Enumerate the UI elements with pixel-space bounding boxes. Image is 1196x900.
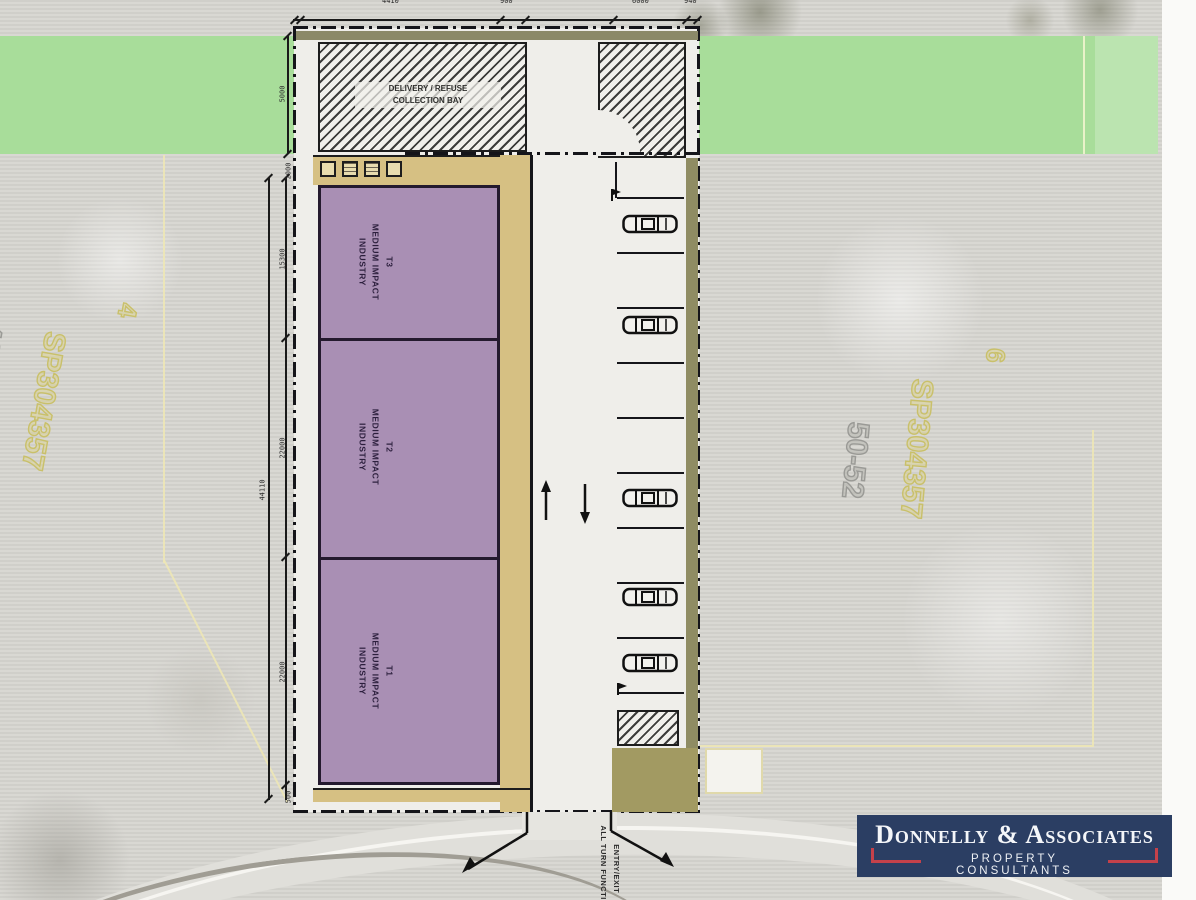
company-logo: Donnelly & Associates PROPERTY CONSULTAN… bbox=[857, 815, 1172, 877]
parking-bay-line bbox=[617, 197, 684, 199]
car-icon bbox=[622, 315, 678, 335]
car-icon bbox=[622, 587, 678, 607]
logo-bracket-left bbox=[871, 848, 921, 863]
tenancy-divider bbox=[321, 338, 497, 341]
meter-box-icon bbox=[386, 161, 402, 177]
awning-bottom-band bbox=[313, 788, 530, 802]
site-plan-page: 4 SP304357 42-44 6 SP304357 50-52 DELIVE… bbox=[0, 0, 1196, 900]
tenancy-label-t1: T1 MEDIUM IMPACT INDUSTRY bbox=[355, 633, 396, 710]
dim-label-top: 900 bbox=[500, 0, 526, 8]
tenancy-label-t2: T2 MEDIUM IMPACT INDUSTRY bbox=[355, 409, 396, 486]
tenancy-id: T3 bbox=[384, 256, 394, 267]
tenancy-use-line2: INDUSTRY bbox=[357, 647, 367, 695]
tenancy-label-t3: T3 MEDIUM IMPACT INDUSTRY bbox=[355, 224, 396, 301]
parcel-right-lot-number: 6 bbox=[979, 347, 1011, 364]
tenancy-id: T2 bbox=[384, 441, 394, 452]
rear-hatched-area bbox=[617, 710, 679, 746]
green-buffer-joint-line bbox=[1083, 36, 1085, 154]
dim-label-left-top: 2000 bbox=[284, 163, 292, 180]
entry-splay-lines bbox=[440, 805, 690, 895]
parking-bay-line bbox=[617, 307, 684, 309]
meter-box-icon bbox=[342, 161, 358, 177]
tenancy-use-line1: MEDIUM IMPACT bbox=[371, 633, 381, 710]
green-buffer-light-patch bbox=[1095, 36, 1158, 154]
tenancy-building-outline bbox=[318, 185, 500, 785]
meter-box-icon bbox=[364, 161, 380, 177]
parking-bay-line bbox=[617, 582, 684, 584]
car-icon bbox=[622, 214, 678, 234]
dim-label-top: 940 bbox=[684, 0, 710, 8]
parking-bay-line bbox=[617, 417, 684, 419]
dimension-line-setback bbox=[287, 36, 289, 154]
front-strip-label-line1: DELIVERY / REFUSE bbox=[389, 84, 468, 93]
page-edge-strip bbox=[1162, 0, 1196, 900]
parking-bay-line bbox=[617, 637, 684, 639]
dim-label-left-bottom: 500 bbox=[284, 791, 292, 804]
dimension-line-left-overall bbox=[268, 178, 270, 800]
boundary-line-right-vertical bbox=[1092, 430, 1094, 747]
tenancy-use-line1: MEDIUM IMPACT bbox=[371, 224, 381, 301]
dim-label-setback: 5000 bbox=[278, 86, 286, 103]
site-boundary-top bbox=[293, 26, 700, 29]
dimension-line-left-segments bbox=[285, 178, 287, 800]
dim-label-top: 4410 bbox=[382, 0, 414, 8]
front-strip-label-line2: COLLECTION BAY bbox=[393, 96, 463, 105]
parking-bay-line bbox=[617, 472, 684, 474]
tenancy-id: T1 bbox=[384, 665, 394, 676]
site-boundary-left bbox=[293, 26, 296, 812]
awning-side-band bbox=[500, 155, 530, 812]
parking-bay-line bbox=[617, 362, 684, 364]
tenancy-use-line2: INDUSTRY bbox=[357, 238, 367, 286]
landscape-strip bbox=[686, 158, 698, 812]
logo-bracket-right bbox=[1108, 848, 1158, 863]
car-icon bbox=[622, 653, 678, 673]
front-strip-edge-band bbox=[296, 31, 698, 40]
corner-landscape-area bbox=[612, 748, 698, 812]
dim-label-left-overall: 44110 bbox=[259, 479, 267, 500]
parking-bay-line bbox=[617, 252, 684, 254]
sign-flag-icon bbox=[616, 682, 628, 696]
entry-label-line2: ALL TURN FUNCTION bbox=[599, 825, 608, 900]
driveway-direction-arrows bbox=[535, 478, 595, 526]
small-building-footprint bbox=[705, 748, 763, 794]
parcel-right-street-number: 50-52 bbox=[834, 421, 875, 500]
boundary-line-right-horizontal bbox=[700, 745, 1092, 747]
dim-label-left-segment: 15300 bbox=[279, 248, 287, 269]
dim-label-left-segment: 22000 bbox=[279, 661, 287, 682]
entry-label-line1: ENTRY/EXIT bbox=[612, 844, 621, 893]
car-icon bbox=[622, 488, 678, 508]
parking-bay-line bbox=[617, 527, 684, 529]
tenancy-use-line1: MEDIUM IMPACT bbox=[371, 409, 381, 486]
driveway-edge-line bbox=[530, 155, 533, 812]
dim-label-left-segment: 22000 bbox=[279, 437, 287, 458]
tenancy-divider bbox=[321, 557, 497, 560]
company-name: Donnelly & Associates bbox=[857, 822, 1172, 848]
tenancy-use-line2: INDUSTRY bbox=[357, 423, 367, 471]
company-tagline: PROPERTY CONSULTANTS bbox=[927, 854, 1102, 877]
entry-exit-label: ENTRY/EXIT ALL TURN FUNCTION bbox=[597, 825, 623, 900]
meter-box-icon bbox=[320, 161, 336, 177]
boundary-line-left bbox=[163, 155, 165, 563]
front-strip-label: DELIVERY / REFUSE COLLECTION BAY bbox=[355, 82, 501, 108]
sign-flag-icon bbox=[610, 188, 622, 202]
dim-label-top: 6000 bbox=[632, 0, 664, 8]
